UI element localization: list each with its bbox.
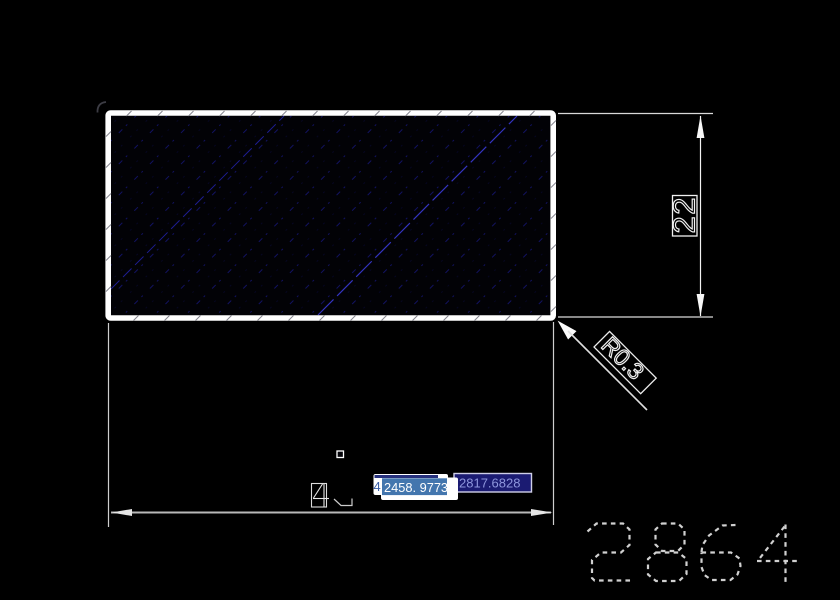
svg-text:2458. 9773: 2458. 9773 [384, 480, 448, 495]
svg-text:22: 22 [667, 196, 702, 233]
svg-text:2817.6828: 2817.6828 [459, 476, 520, 491]
svg-text:4: 4 [374, 479, 381, 494]
